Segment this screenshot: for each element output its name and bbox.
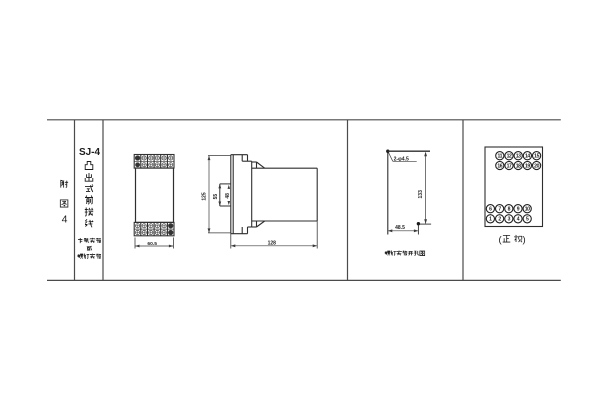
svg-text:128: 128: [268, 241, 277, 247]
svg-text:17: 17: [507, 163, 512, 169]
svg-text:19: 19: [525, 163, 530, 169]
svg-text:20: 20: [534, 163, 539, 169]
svg-text:12: 12: [507, 154, 512, 160]
svg-text:11: 11: [498, 154, 503, 160]
svg-text:16: 16: [497, 163, 502, 169]
svg-text:18: 18: [516, 163, 521, 169]
svg-text:): ): [523, 234, 526, 245]
svg-text:4: 4: [62, 214, 68, 226]
svg-text:13: 13: [516, 154, 521, 160]
svg-text:60.5: 60.5: [147, 241, 157, 247]
svg-text:10: 10: [525, 207, 530, 213]
svg-text:2-φ4.5: 2-φ4.5: [394, 156, 409, 162]
svg-text:48.5: 48.5: [395, 225, 405, 231]
svg-text:SJ-4: SJ-4: [79, 147, 101, 158]
svg-text:14: 14: [525, 154, 530, 160]
svg-text:15: 15: [534, 154, 539, 160]
svg-text:55: 55: [213, 194, 219, 200]
svg-text:125: 125: [201, 192, 207, 201]
svg-text:133: 133: [418, 190, 424, 199]
svg-text:48: 48: [225, 193, 231, 199]
